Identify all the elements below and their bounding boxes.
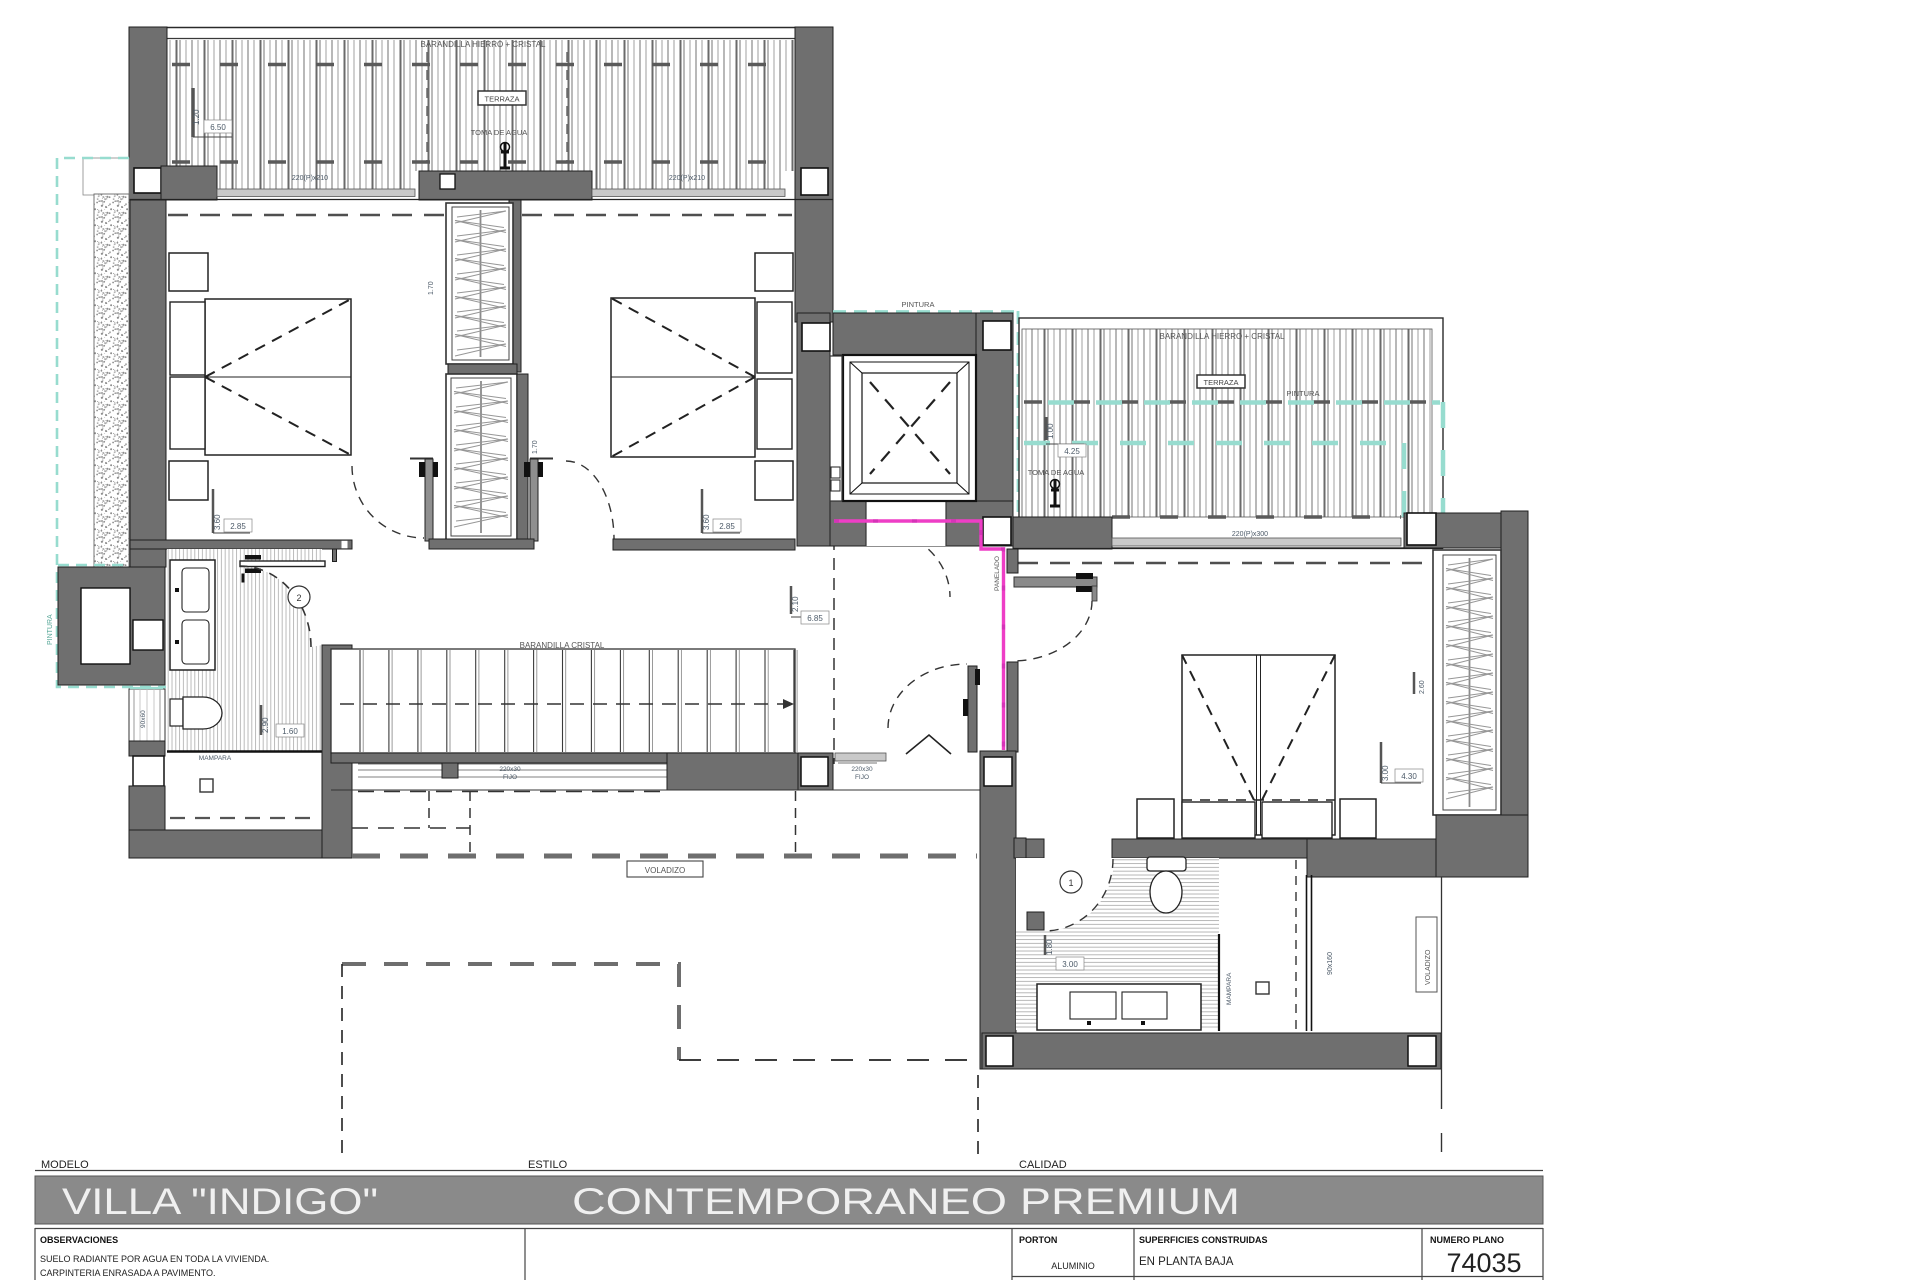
svg-text:ALUMINIO: ALUMINIO <box>1051 1261 1095 1271</box>
svg-text:3.60: 3.60 <box>213 514 222 530</box>
svg-text:2.85: 2.85 <box>230 522 246 531</box>
svg-text:SUELO RADIANTE POR AGUA EN TOD: SUELO RADIANTE POR AGUA EN TODA LA VIVIE… <box>40 1254 269 1264</box>
svg-text:VOLADIZO: VOLADIZO <box>1425 949 1432 985</box>
svg-text:MAMPARA: MAMPARA <box>199 755 232 762</box>
svg-text:90x160: 90x160 <box>1327 952 1334 975</box>
svg-text:1.70: 1.70 <box>428 281 435 295</box>
svg-text:6.50: 6.50 <box>210 123 226 132</box>
svg-text:2.90: 2.90 <box>261 717 270 733</box>
svg-text:VILLA "INDIGO": VILLA "INDIGO" <box>62 1181 378 1222</box>
svg-text:PINTURA: PINTURA <box>47 614 54 645</box>
svg-text:MODELO: MODELO <box>41 1159 89 1171</box>
svg-text:4.30: 4.30 <box>1401 772 1417 781</box>
svg-text:CARPINTERIA ENRASADA A PAVIMEN: CARPINTERIA ENRASADA A PAVIMENTO. <box>40 1268 216 1278</box>
svg-text:NUMERO PLANO: NUMERO PLANO <box>1430 1235 1504 1245</box>
svg-text:2.10: 2.10 <box>791 596 800 612</box>
svg-text:1.00: 1.00 <box>1046 423 1055 439</box>
svg-text:6.85: 6.85 <box>807 614 823 623</box>
svg-text:1: 1 <box>1068 878 1073 888</box>
svg-text:PINTURA: PINTURA <box>902 300 935 309</box>
svg-text:1.20: 1.20 <box>192 109 201 125</box>
svg-text:MAMPARA: MAMPARA <box>1226 972 1233 1005</box>
svg-text:CONTEMPORANEO PREMIUM: CONTEMPORANEO PREMIUM <box>572 1181 1240 1222</box>
svg-text:TOMA DE AGUA: TOMA DE AGUA <box>471 128 528 137</box>
svg-text:1.60: 1.60 <box>282 727 298 736</box>
svg-text:BARANDILLA CRISTAL: BARANDILLA CRISTAL <box>520 641 605 650</box>
svg-text:220(P)x210: 220(P)x210 <box>292 175 328 182</box>
svg-text:2.60: 2.60 <box>1419 680 1426 694</box>
svg-text:TOMA DE AGUA: TOMA DE AGUA <box>1028 468 1085 477</box>
svg-text:PANELADO: PANELADO <box>994 556 1001 591</box>
svg-text:BARANDILLA HIERRO + CRISTAL: BARANDILLA HIERRO + CRISTAL <box>1160 332 1286 341</box>
svg-text:3.00: 3.00 <box>1062 960 1078 969</box>
svg-text:220x30: 220x30 <box>851 766 873 773</box>
svg-text:1.70: 1.70 <box>532 440 539 454</box>
svg-text:FIJO: FIJO <box>503 774 517 781</box>
svg-text:3.00: 3.00 <box>1381 765 1390 781</box>
svg-text:220(P)x300: 220(P)x300 <box>1232 531 1268 538</box>
svg-text:ESTILO: ESTILO <box>528 1159 568 1171</box>
svg-text:220x30: 220x30 <box>499 766 521 773</box>
svg-text:2.85: 2.85 <box>719 522 735 531</box>
svg-text:3.60: 3.60 <box>702 514 711 530</box>
svg-text:2: 2 <box>296 593 301 603</box>
svg-text:OBSERVACIONES: OBSERVACIONES <box>40 1235 118 1245</box>
svg-text:PORTON: PORTON <box>1019 1235 1057 1245</box>
svg-text:4.25: 4.25 <box>1064 447 1080 456</box>
svg-text:EN PLANTA BAJA: EN PLANTA BAJA <box>1139 1256 1234 1268</box>
svg-text:SUPERFICIES CONSTRUIDAS: SUPERFICIES CONSTRUIDAS <box>1139 1235 1268 1245</box>
svg-text:1.80: 1.80 <box>1045 939 1054 955</box>
svg-text:CALIDAD: CALIDAD <box>1019 1159 1067 1171</box>
svg-text:220(P)x210: 220(P)x210 <box>669 175 705 182</box>
svg-text:TERRAZA: TERRAZA <box>484 95 519 104</box>
svg-text:74035: 74035 <box>1446 1248 1521 1278</box>
svg-text:TERRAZA: TERRAZA <box>1203 378 1238 387</box>
svg-text:90x60: 90x60 <box>140 710 147 728</box>
svg-text:FIJO: FIJO <box>855 774 869 781</box>
svg-text:VOLADIZO: VOLADIZO <box>645 866 685 875</box>
svg-text:BARANDILLA HIERRO + CRISTAL: BARANDILLA HIERRO + CRISTAL <box>421 40 547 49</box>
svg-text:PINTURA: PINTURA <box>1287 389 1320 398</box>
